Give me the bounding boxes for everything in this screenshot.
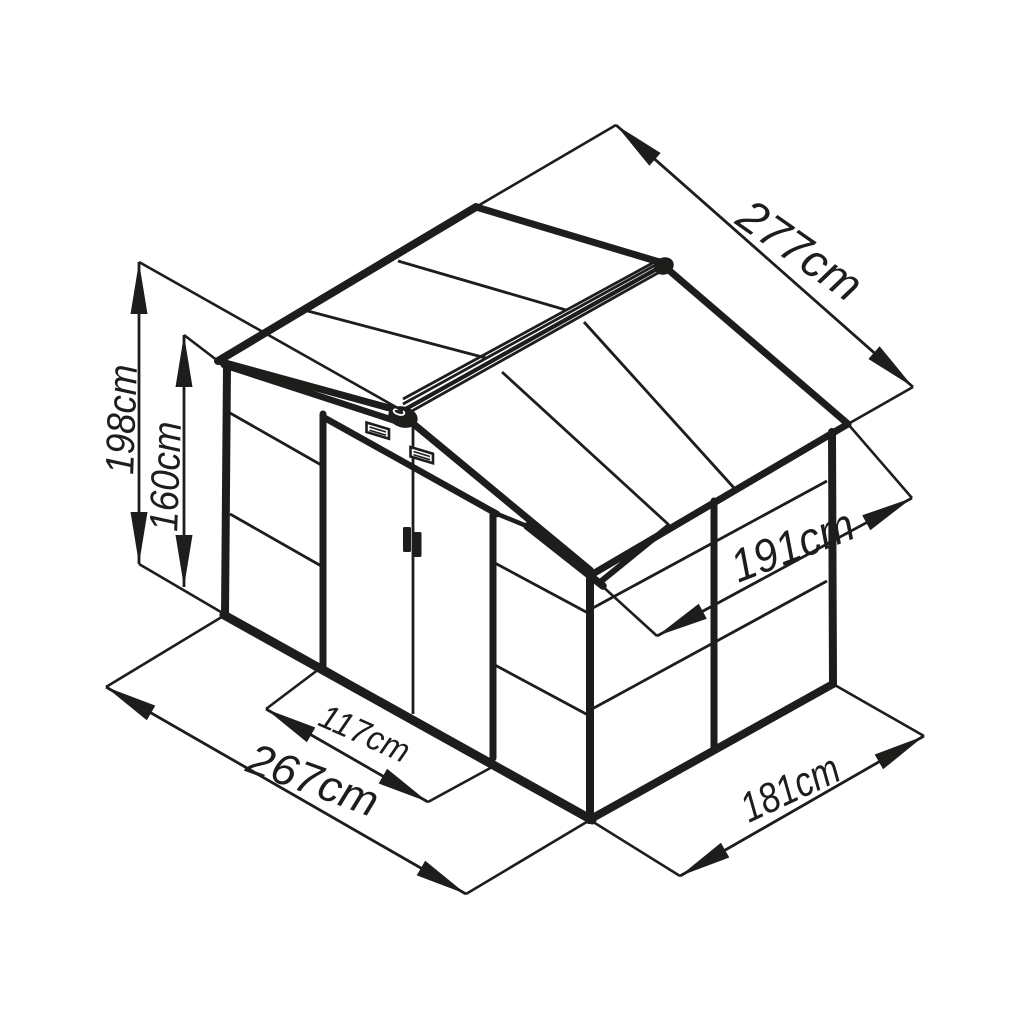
svg-text:198cm: 198cm xyxy=(98,364,146,475)
svg-text:277cm: 277cm xyxy=(727,188,872,311)
svg-text:160cm: 160cm xyxy=(142,421,190,532)
svg-text:191cm: 191cm xyxy=(723,498,861,592)
svg-text:181cm: 181cm xyxy=(733,745,847,832)
